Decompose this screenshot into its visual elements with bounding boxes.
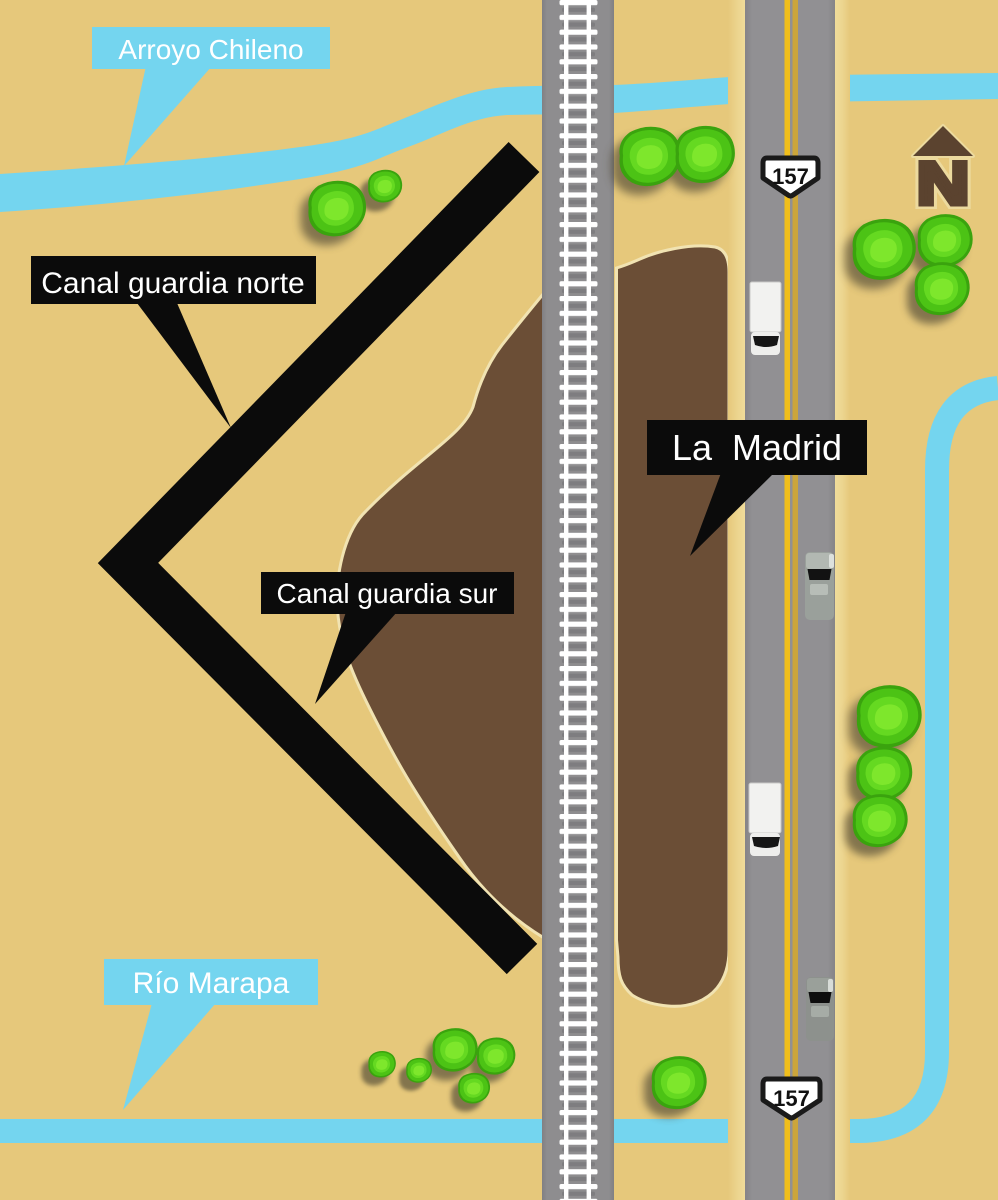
svg-text:N: N [917, 150, 970, 217]
svg-text:Arroyo Chileno: Arroyo Chileno [118, 34, 303, 65]
svg-text:Canal guardia norte: Canal guardia norte [41, 267, 305, 300]
svg-text:157: 157 [772, 164, 809, 189]
svg-text:Canal guardia sur: Canal guardia sur [276, 578, 497, 609]
svg-text:La Madrid: La Madrid [672, 427, 842, 468]
svg-text:157: 157 [773, 1086, 810, 1111]
svg-text:Río Marapa: Río Marapa [133, 967, 290, 1000]
